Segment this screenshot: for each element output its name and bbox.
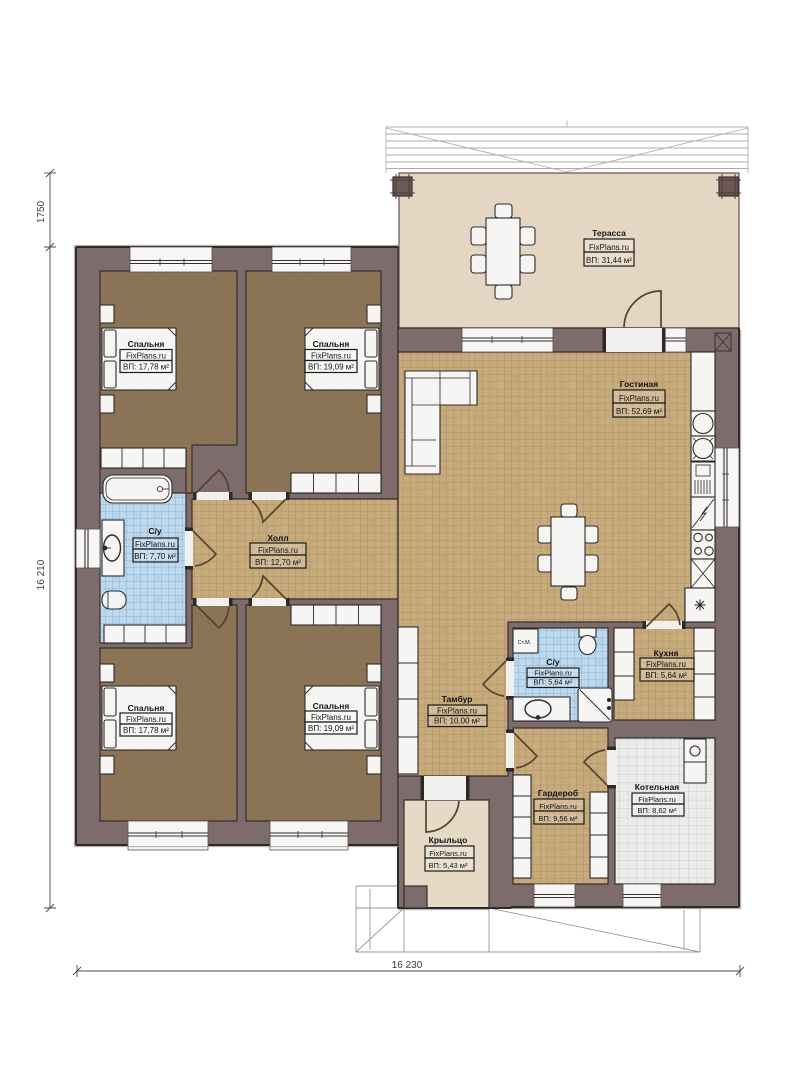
svg-text:Тамбур: Тамбур <box>442 694 473 704</box>
svg-text:16 210: 16 210 <box>36 559 47 590</box>
svg-text:ВП: 7,70 м²: ВП: 7,70 м² <box>134 552 176 561</box>
svg-text:Крыльцо: Крыльцо <box>429 835 468 845</box>
svg-text:ВП: 8,62 м²: ВП: 8,62 м² <box>638 806 677 815</box>
svg-text:ВП: 9,56 м²: ВП: 9,56 м² <box>539 814 578 823</box>
svg-text:FixPlans.ru: FixPlans.ru <box>311 351 351 360</box>
svg-text:ВП: 19,09 м²: ВП: 19,09 м² <box>308 724 354 733</box>
svg-text:ВП: 5,64 м²: ВП: 5,64 м² <box>645 671 687 680</box>
svg-text:FixPlans.ru: FixPlans.ru <box>638 795 676 804</box>
svg-text:FixPlans.ru: FixPlans.ru <box>646 660 686 669</box>
svg-text:FixPlans.ru: FixPlans.ru <box>311 713 351 722</box>
svg-text:Холл: Холл <box>267 533 288 543</box>
svg-text:Гостиная: Гостиная <box>620 379 658 389</box>
svg-text:Котельная: Котельная <box>635 782 680 792</box>
svg-text:FixPlans.ru: FixPlans.ru <box>429 849 467 858</box>
svg-text:ВП: 5,64 м²: ВП: 5,64 м² <box>534 678 573 687</box>
svg-text:FixPlans.ru: FixPlans.ru <box>258 546 298 555</box>
svg-text:ВП: 5,43 м²: ВП: 5,43 м² <box>429 861 468 870</box>
svg-text:FixPlans.ru: FixPlans.ru <box>619 394 659 403</box>
svg-text:Спальня: Спальня <box>128 339 165 349</box>
svg-text:FixPlans.ru: FixPlans.ru <box>126 715 166 724</box>
svg-text:FixPlans.ru: FixPlans.ru <box>437 706 477 715</box>
svg-text:FixPlans.ru: FixPlans.ru <box>589 243 629 252</box>
svg-text:ВП: 12,70 м²: ВП: 12,70 м² <box>255 558 301 567</box>
svg-text:FixPlans.ru: FixPlans.ru <box>135 540 175 549</box>
svg-text:ВП: 19,09 м²: ВП: 19,09 м² <box>308 363 354 372</box>
svg-text:Гардероб: Гардероб <box>538 788 578 798</box>
svg-text:FixPlans.ru: FixPlans.ru <box>126 351 166 360</box>
svg-text:Спальня: Спальня <box>128 703 165 713</box>
svg-text:16 230: 16 230 <box>392 960 423 971</box>
svg-text:Спальня: Спальня <box>313 339 350 349</box>
svg-text:Кухня: Кухня <box>654 648 679 658</box>
svg-text:ВП: 52,69 м²: ВП: 52,69 м² <box>616 407 662 416</box>
svg-text:FixPlans.ru: FixPlans.ru <box>534 668 572 677</box>
svg-text:ВП: 17,78 м²: ВП: 17,78 м² <box>123 726 169 735</box>
svg-text:ВП: 31,44 м²: ВП: 31,44 м² <box>586 256 632 265</box>
svg-text:FixPlans.ru: FixPlans.ru <box>539 802 577 811</box>
svg-text:С/у: С/у <box>546 657 560 667</box>
svg-text:ВП: 17,78 м²: ВП: 17,78 м² <box>123 363 169 372</box>
svg-text:С/у: С/у <box>148 526 162 536</box>
svg-text:ВП: 10,00 м²: ВП: 10,00 м² <box>434 717 480 726</box>
svg-text:Терасса: Терасса <box>592 228 626 238</box>
svg-text:Спальня: Спальня <box>313 701 350 711</box>
svg-text:Ст.М.: Ст.М. <box>518 640 532 646</box>
svg-text:1750: 1750 <box>36 200 47 223</box>
